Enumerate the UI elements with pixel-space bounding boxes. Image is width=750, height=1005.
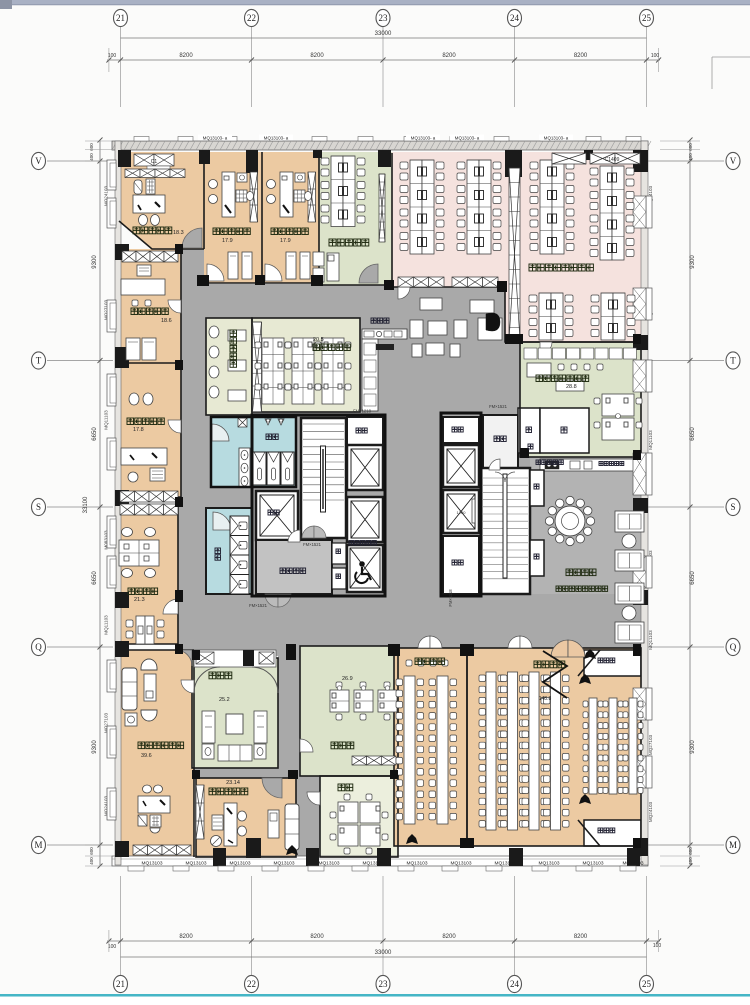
svg-text:24: 24 — [510, 979, 520, 989]
svg-text:1200: 1200 — [457, 510, 467, 515]
svg-text:MQ13103- a: MQ13103- a — [203, 136, 228, 141]
svg-text:Q: Q — [35, 642, 42, 652]
svg-text:20.5: 20.5 — [313, 337, 324, 343]
svg-text:Q: Q — [730, 642, 737, 652]
svg-text:MQ11103: MQ11103 — [104, 410, 109, 430]
svg-text:8200: 8200 — [574, 934, 588, 940]
svg-text:18.6: 18.6 — [161, 318, 172, 324]
svg-text:400: 400 — [688, 153, 693, 161]
svg-text:MQ13103: MQ13103 — [273, 861, 294, 867]
svg-text:MQ13103: MQ13103 — [450, 861, 471, 867]
svg-text:M: M — [34, 840, 42, 850]
svg-text:FM×1521: FM×1521 — [249, 603, 267, 608]
svg-text:MQ13103- a: MQ13103- a — [544, 136, 569, 141]
svg-text:8200: 8200 — [442, 934, 456, 940]
svg-text:V: V — [35, 156, 42, 166]
svg-text:MQ13103- a: MQ13103- a — [411, 136, 436, 141]
svg-text:28.8: 28.8 — [566, 384, 577, 390]
svg-text:MQ27103: MQ27103 — [648, 734, 653, 755]
svg-text:25.2: 25.2 — [219, 697, 230, 703]
svg-text:23.14: 23.14 — [226, 780, 240, 786]
svg-text:6650: 6650 — [690, 427, 696, 441]
svg-text:148.8: 148.8 — [539, 696, 552, 702]
svg-text:MQ13103: MQ13103 — [538, 861, 559, 867]
svg-text:M: M — [729, 840, 737, 850]
svg-text:33000: 33000 — [375, 950, 392, 956]
svg-text:8200: 8200 — [179, 934, 193, 940]
svg-text:6650: 6650 — [92, 427, 98, 441]
svg-text:FM×1218: FM×1218 — [353, 409, 371, 414]
svg-text:MQ13103- a: MQ13103- a — [455, 136, 480, 141]
svg-text:MQ13103: MQ13103 — [362, 861, 383, 867]
svg-text:33100: 33100 — [83, 496, 89, 513]
svg-text:MQ13103: MQ13103 — [582, 861, 603, 867]
svg-text:FM×1118: FM×1118 — [448, 589, 453, 607]
svg-text:21: 21 — [116, 979, 125, 989]
svg-text:FM×1521: FM×1521 — [489, 404, 507, 409]
svg-text:MQ24103: MQ24103 — [648, 801, 653, 822]
svg-text:9300: 9300 — [690, 255, 696, 269]
svg-text:39.6: 39.6 — [141, 753, 152, 759]
svg-text:25: 25 — [642, 13, 652, 23]
svg-text:T: T — [730, 356, 736, 366]
svg-text:8200: 8200 — [442, 53, 456, 59]
svg-text:100: 100 — [651, 53, 660, 59]
svg-text:MQ13103: MQ13103 — [406, 861, 427, 867]
svg-text:600: 600 — [688, 847, 693, 855]
svg-text:MQ13103- a: MQ13103- a — [264, 136, 289, 141]
svg-text:FM×1521: FM×1521 — [303, 542, 321, 547]
svg-text:C1: C1 — [151, 159, 158, 165]
svg-text:S: S — [36, 502, 41, 512]
svg-text:8200: 8200 — [574, 53, 588, 59]
svg-text:9300: 9300 — [690, 740, 696, 754]
svg-text:MQ13103: MQ13103 — [229, 861, 250, 867]
svg-text:8200: 8200 — [310, 53, 324, 59]
svg-text:8200: 8200 — [310, 934, 324, 940]
svg-text:MQ13103: MQ13103 — [318, 861, 339, 867]
svg-text:26.9: 26.9 — [342, 676, 353, 682]
svg-text:400: 400 — [89, 857, 94, 865]
svg-text:100: 100 — [653, 943, 662, 949]
svg-text:24: 24 — [510, 13, 520, 23]
svg-text:V: V — [730, 156, 737, 166]
svg-text:25: 25 — [642, 979, 652, 989]
svg-text:6650: 6650 — [92, 571, 98, 585]
svg-text:C1409: C1409 — [605, 157, 620, 163]
svg-text:400: 400 — [688, 857, 693, 865]
svg-text:8200: 8200 — [179, 53, 193, 59]
svg-text:23: 23 — [379, 979, 389, 989]
svg-text:6650: 6650 — [690, 571, 696, 585]
svg-text:33000: 33000 — [375, 31, 392, 37]
svg-text:17.8: 17.8 — [133, 427, 144, 433]
svg-text:MQ13103: MQ13103 — [494, 861, 515, 867]
svg-text:23: 23 — [379, 13, 389, 23]
svg-text:21: 21 — [116, 13, 125, 23]
svg-text:22: 22 — [247, 979, 256, 989]
svg-text:9300: 9300 — [92, 255, 98, 269]
svg-text:MQ11103: MQ11103 — [104, 615, 109, 635]
svg-text:17.9: 17.9 — [222, 238, 233, 244]
svg-text:MQ11103: MQ11103 — [648, 630, 653, 650]
svg-text:100: 100 — [108, 53, 117, 59]
svg-text:21.3: 21.3 — [134, 597, 145, 603]
svg-text:400: 400 — [89, 153, 94, 161]
svg-text:T: T — [36, 356, 42, 366]
svg-text:MQ13103: MQ13103 — [185, 861, 206, 867]
svg-text:MQ13103: MQ13103 — [622, 861, 643, 867]
svg-text:18.3: 18.3 — [173, 230, 184, 236]
svg-text:9300: 9300 — [92, 740, 98, 754]
svg-text:600: 600 — [89, 847, 94, 855]
svg-text:S: S — [730, 502, 735, 512]
svg-text:22: 22 — [247, 13, 256, 23]
svg-text:MQ11103: MQ11103 — [648, 430, 653, 450]
svg-text:MQ13103: MQ13103 — [141, 861, 162, 867]
svg-text:17.9: 17.9 — [280, 238, 291, 244]
